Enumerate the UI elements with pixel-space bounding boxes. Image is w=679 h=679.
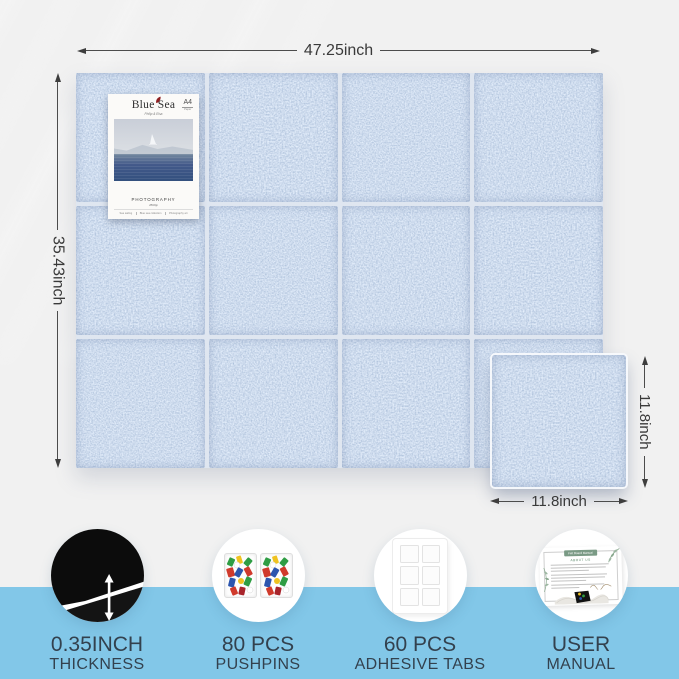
feature-pushpins: 80 PCS PUSHPINS	[170, 529, 346, 672]
arrow-down-icon	[642, 479, 648, 488]
user-manual-icon: Felt Board Manual ABOUT US	[535, 529, 628, 622]
poster-title: Blue Sea	[114, 99, 193, 111]
feature-value: 60 PCS	[384, 636, 456, 653]
feature-value: 80 PCS	[222, 636, 294, 653]
dimension-line	[499, 501, 524, 502]
poster-footer: PHOTOGRAPHY Philip Sea sailing Blue sea …	[114, 197, 193, 215]
sailboat-hull	[149, 144, 157, 145]
leaf-decoration-icon	[541, 567, 552, 591]
board-width-dimension: 47.25inch	[77, 44, 600, 57]
product-infographic: Blue Sea Philip & Elsa A4 Paper PHOTOGRA…	[0, 0, 679, 679]
felt-sample-photo	[554, 587, 608, 603]
felt-tile	[474, 73, 603, 202]
leaf-icon	[155, 96, 162, 104]
feature-adhesive-tabs: 60 PCS ADHESIVE TABS	[332, 529, 508, 672]
manual-wrap: Felt Board Manual ABOUT US	[535, 529, 628, 622]
board-height-label: 35.43inch	[49, 230, 67, 311]
poster-subtitle: Philip & Elsa	[114, 112, 193, 116]
feature-thickness: 0.35INCH THICKNESS	[9, 529, 185, 672]
board-height-dimension: 35.43inch	[51, 73, 64, 468]
felt-tile	[474, 206, 603, 335]
tabs-sheet-wrap	[374, 529, 467, 622]
divider	[165, 212, 166, 216]
felt-tile	[76, 339, 205, 468]
felt-tile	[209, 206, 338, 335]
felt-tile	[76, 206, 205, 335]
adhesive-tabs-grid	[400, 545, 440, 607]
pushpin-box	[224, 553, 257, 598]
dimension-line	[644, 365, 645, 388]
dimension-line	[644, 456, 645, 479]
tile-width-label: 11.8inch	[524, 493, 594, 510]
poster: Blue Sea Philip & Elsa A4 Paper PHOTOGRA…	[108, 94, 199, 219]
arrow-right-icon	[619, 498, 628, 504]
feature-value: USER	[552, 636, 610, 653]
felt-tile	[342, 339, 471, 468]
poster-caption: PHOTOGRAPHY	[114, 197, 193, 202]
adhesive-tabs-icon	[374, 529, 467, 622]
sailboat-icon	[150, 134, 156, 144]
feature-label: ADHESIVE TABS	[355, 657, 486, 672]
pushpins-icon	[212, 529, 305, 622]
tile-height-dimension: 11.8inch	[638, 356, 651, 488]
sea-water	[114, 154, 193, 181]
felt-tile	[209, 73, 338, 202]
pushpin-box	[260, 553, 293, 598]
felt-tile	[342, 206, 471, 335]
dimension-line	[57, 311, 58, 459]
arrow-down-icon	[55, 459, 61, 468]
arrow-up-icon	[55, 73, 61, 82]
dimension-line	[380, 50, 591, 51]
poster-meta-item: Blue sea collection	[140, 212, 162, 215]
leaf-decoration-icon	[601, 546, 622, 567]
manual-banner: Felt Board Manual	[564, 549, 597, 556]
dimension-line	[594, 501, 619, 502]
poster-meta-item: Sea sailing	[120, 212, 133, 215]
feature-value: 0.35INCH	[51, 636, 143, 653]
thickness-arrow-icon	[51, 529, 144, 622]
manual-page: Felt Board Manual ABOUT US	[539, 545, 622, 605]
felt-tile	[342, 73, 471, 202]
poster-meta-row: Sea sailing Blue sea collection Photogra…	[114, 209, 193, 215]
paper-word: Paper	[182, 108, 193, 111]
poster-author: Philip	[114, 203, 193, 207]
adhesive-tabs-sheet	[393, 539, 447, 613]
tile-width-dimension: 11.8inch	[490, 494, 628, 508]
feature-user-manual: Felt Board Manual ABOUT US	[493, 529, 669, 672]
dimension-line	[57, 82, 58, 230]
board-width-label: 47.25inch	[297, 42, 380, 60]
feature-label: MANUAL	[546, 657, 615, 672]
pushpin-packs	[212, 529, 305, 622]
arrow-up-icon	[642, 356, 648, 365]
single-felt-tile	[492, 355, 626, 487]
sea-photo	[114, 119, 193, 181]
felt-texture	[492, 355, 626, 487]
poster-meta-item: Photography art	[169, 212, 187, 215]
arrow-left-icon	[490, 498, 499, 504]
black-felt-edge-graphic	[51, 529, 144, 622]
feature-label: THICKNESS	[49, 657, 144, 672]
divider	[136, 212, 137, 216]
paper-size: A4	[182, 99, 193, 108]
paper-size-mark: A4 Paper	[182, 99, 193, 111]
arrow-left-icon	[77, 48, 86, 54]
feature-label: PUSHPINS	[216, 657, 301, 672]
tile-height-label: 11.8inch	[636, 388, 653, 456]
felt-tile	[209, 339, 338, 468]
arrow-right-icon	[591, 48, 600, 54]
dimension-line	[86, 50, 297, 51]
poster-header: Blue Sea Philip & Elsa A4 Paper	[114, 99, 193, 116]
